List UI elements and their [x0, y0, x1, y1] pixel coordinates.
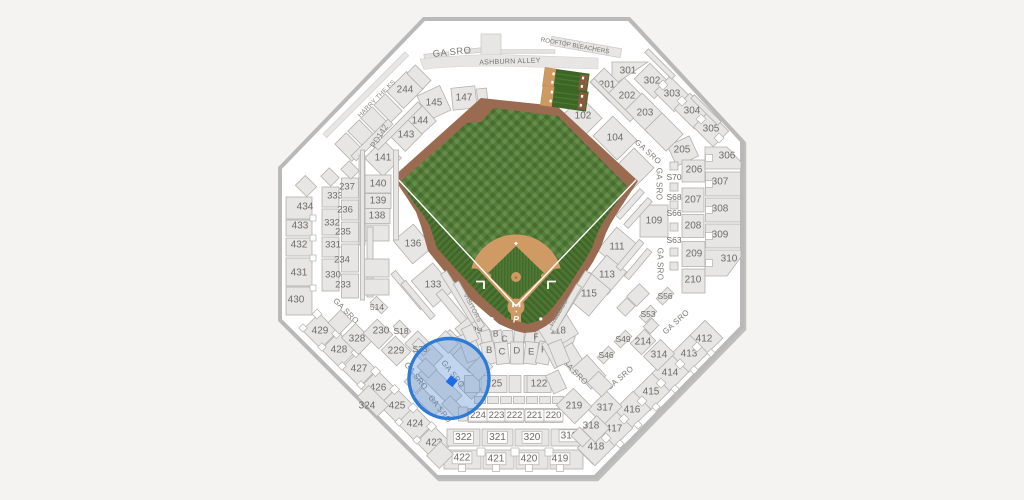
svg-text:317: 317	[597, 403, 614, 414]
svg-text:122: 122	[531, 379, 548, 390]
svg-text:414: 414	[662, 368, 679, 379]
svg-text:111: 111	[609, 242, 625, 253]
svg-text:304: 304	[684, 106, 701, 117]
svg-text:144: 144	[412, 116, 429, 127]
svg-text:210: 210	[685, 275, 702, 286]
svg-text:B: B	[486, 345, 492, 356]
svg-text:208: 208	[685, 221, 702, 232]
svg-text:S18: S18	[393, 326, 408, 336]
svg-text:E: E	[528, 346, 534, 357]
svg-text:102: 102	[575, 111, 592, 122]
svg-text:424: 424	[407, 419, 424, 430]
svg-text:S68: S68	[666, 192, 681, 202]
svg-text:115: 115	[581, 289, 597, 300]
svg-text:321: 321	[489, 432, 506, 443]
svg-text:328: 328	[349, 334, 366, 345]
svg-text:S63: S63	[666, 235, 681, 245]
svg-text:S56: S56	[657, 291, 672, 301]
svg-text:416: 416	[624, 405, 641, 416]
svg-text:147: 147	[456, 93, 473, 104]
svg-text:GA SRO: GA SRO	[656, 248, 665, 280]
svg-text:428: 428	[331, 345, 348, 356]
svg-text:418: 418	[588, 442, 605, 453]
svg-text:244: 244	[397, 85, 414, 96]
svg-text:514: 514	[370, 302, 384, 312]
svg-text:GA SRO: GA SRO	[655, 168, 664, 200]
svg-text:421: 421	[488, 454, 505, 465]
svg-text:203: 203	[637, 108, 654, 119]
svg-text:415: 415	[643, 387, 660, 398]
svg-text:229: 229	[388, 346, 405, 357]
svg-text:223: 223	[489, 410, 505, 421]
svg-text:320: 320	[524, 432, 541, 443]
svg-text:430: 430	[288, 295, 305, 306]
svg-text:220: 220	[546, 410, 562, 421]
svg-text:309: 309	[712, 230, 729, 241]
svg-text:422: 422	[454, 453, 471, 464]
svg-text:434: 434	[297, 202, 314, 213]
svg-text:420: 420	[521, 454, 538, 465]
svg-text:433: 433	[292, 221, 309, 232]
svg-text:141: 141	[375, 153, 392, 164]
svg-text:139: 139	[370, 196, 387, 207]
svg-text:S70: S70	[666, 172, 681, 182]
svg-text:D: D	[513, 346, 520, 357]
svg-text:307: 307	[712, 177, 729, 188]
svg-text:B: B	[493, 329, 499, 339]
svg-text:429: 429	[312, 326, 329, 337]
svg-text:S66: S66	[666, 208, 681, 218]
svg-text:133: 133	[425, 280, 442, 291]
svg-text:237: 237	[339, 182, 355, 193]
svg-text:113: 113	[599, 270, 615, 281]
svg-text:S53: S53	[640, 309, 655, 319]
svg-text:104: 104	[607, 133, 624, 144]
svg-text:432: 432	[291, 240, 308, 251]
svg-text:331: 331	[325, 240, 341, 251]
svg-text:322: 322	[455, 432, 472, 443]
svg-text:230: 230	[373, 326, 390, 337]
svg-text:301: 301	[620, 66, 637, 77]
svg-text:145: 145	[426, 98, 443, 109]
svg-text:314: 314	[651, 350, 668, 361]
svg-text:S46: S46	[598, 350, 613, 360]
svg-text:431: 431	[291, 268, 308, 279]
svg-text:221: 221	[527, 410, 543, 421]
svg-text:202: 202	[619, 91, 636, 102]
svg-text:419: 419	[552, 454, 569, 465]
svg-text:138: 138	[369, 211, 386, 222]
svg-text:S49: S49	[615, 334, 630, 344]
svg-text:109: 109	[646, 216, 663, 227]
svg-text:425: 425	[389, 401, 406, 412]
svg-text:C: C	[501, 334, 507, 344]
svg-text:234: 234	[334, 255, 350, 266]
svg-text:207: 207	[685, 195, 702, 206]
svg-text:222: 222	[507, 410, 523, 421]
svg-text:143: 143	[398, 130, 415, 141]
svg-text:F: F	[533, 331, 538, 341]
svg-text:306: 306	[719, 151, 736, 162]
svg-text:219: 219	[566, 401, 583, 412]
svg-text:136: 136	[405, 239, 422, 250]
svg-text:206: 206	[686, 165, 703, 176]
svg-text:235: 235	[335, 227, 351, 238]
svg-text:303: 303	[664, 89, 681, 100]
svg-text:C: C	[498, 346, 505, 357]
svg-text:209: 209	[686, 249, 703, 260]
svg-text:P: P	[513, 315, 520, 325]
svg-text:236: 236	[337, 205, 353, 216]
svg-text:310: 310	[721, 254, 738, 265]
svg-text:308: 308	[712, 204, 729, 215]
svg-text:140: 140	[370, 179, 387, 190]
svg-text:427: 427	[351, 364, 368, 375]
svg-text:214: 214	[635, 337, 652, 348]
svg-text:233: 233	[335, 280, 351, 291]
svg-text:324: 324	[359, 401, 376, 412]
svg-text:318: 318	[583, 421, 600, 432]
svg-text:205: 205	[674, 145, 691, 156]
